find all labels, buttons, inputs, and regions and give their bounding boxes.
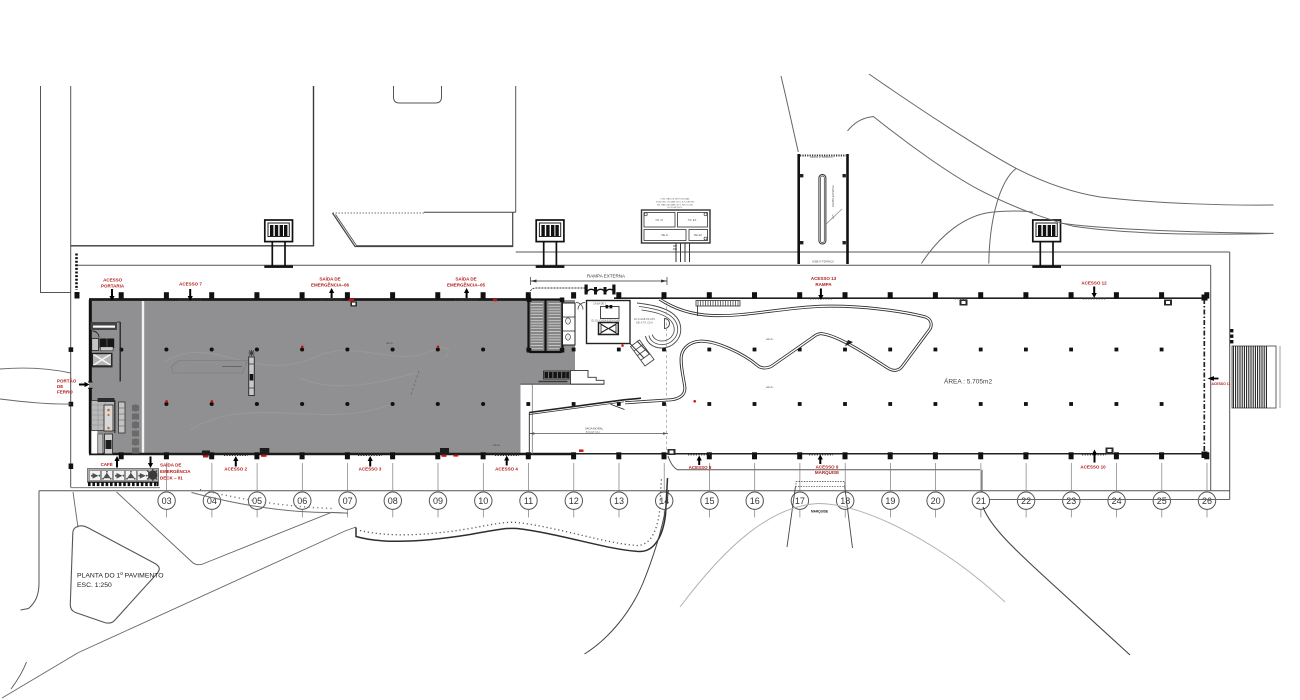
svg-text:12: 12 [569,496,579,506]
svg-text:GB. A.TS. CS.A: GB. A.TS. CS.A [636,322,653,325]
svg-text:SAÍDA DE: SAÍDA DE [160,461,181,468]
svg-text:CON. PAD.CE SE.P.USI.GAB.: CON. PAD.CE SE.P.USI.GAB. [660,198,690,201]
svg-text:PORTARIA: PORTARIA [101,283,125,288]
svg-text:RAMPA EXTERNA: RAMPA EXTERNA [587,274,625,279]
svg-text:PLANTA DO 1º PAVIMENTO: PLANTA DO 1º PAVIMENTO [77,573,164,580]
svg-text:03: 03 [162,496,172,506]
svg-text:ACESSO 11: ACESSO 11 [1212,382,1231,386]
svg-text:CAFÉ: CAFÉ [101,460,113,467]
svg-text:PORTÃO: PORTÃO [57,378,77,384]
svg-text:ACESSO 10: ACESSO 10 [1080,465,1106,470]
svg-text:FERRO: FERRO [57,390,73,395]
svg-text:ACESSO 13: ACESSO 13 [811,276,837,281]
svg-text:EMERGÊNCIA–05: EMERGÊNCIA–05 [447,280,486,287]
svg-text:T.R. M: T.R. M [655,218,663,222]
svg-text:SAÍDA DE: SAÍDA DE [455,275,476,282]
svg-text:07: 07 [343,496,353,506]
svg-text:17: 17 [795,496,805,506]
svg-text:T.R. EX: T.R. EX [688,218,697,222]
svg-text:ÁREA : 5.705m2: ÁREA : 5.705m2 [944,377,992,386]
svg-text:ACESSO 7: ACESSO 7 [179,282,202,287]
svg-text:⌀A.A.: ⌀A.A. [493,443,501,447]
svg-text:SOBE P/ TERRACO: SOBE P/ TERRACO [812,261,834,264]
svg-text:ACESSO 12: ACESSO 12 [1081,281,1107,286]
svg-text:DECK – 01: DECK – 01 [160,476,183,481]
svg-text:08: 08 [388,496,398,506]
svg-text:16: 16 [750,496,760,506]
svg-text:RAMPA: RAMPA [815,282,832,287]
svg-text:ACESSO: ACESSO [103,278,123,283]
svg-text:09: 09 [433,496,443,506]
svg-text:EMERGÊNCIA–06: EMERGÊNCIA–06 [311,280,350,287]
svg-text:ME.D.: ME.D. [661,233,668,237]
svg-text:25: 25 [1157,496,1167,506]
svg-text:E.CS.SE.CE S.: E.CS.SE.CE S. [668,207,683,209]
svg-text:B.St.GT CS.I: B.St.GT CS.I [586,431,600,434]
svg-text:ESC. 1:250: ESC. 1:250 [77,582,112,589]
svg-text:20: 20 [931,496,941,506]
svg-text:ACESSO 9: ACESSO 9 [816,465,839,470]
svg-text:ACESSO 4: ACESSO 4 [495,467,518,472]
svg-text:⌀A.A.: ⌀A.A. [386,341,394,345]
svg-text:EMERGÊNCIA: EMERGÊNCIA [160,467,191,474]
svg-text:CASA DE 1: CASA DE 1 [593,301,607,305]
svg-text:⌀A.A.: ⌀A.A. [766,385,774,389]
svg-text:24: 24 [1112,496,1122,506]
svg-text:13: 13 [614,496,624,506]
svg-text:10: 10 [478,496,488,506]
svg-text:⌀A.A.: ⌀A.A. [766,337,774,341]
svg-text:19: 19 [885,496,895,506]
svg-text:SE. PAD.USI.GAB.CE S. SE.CS.US: SE. PAD.USI.GAB.CE S. SE.CS.USI [657,203,693,206]
svg-text:11: 11 [524,496,533,506]
svg-text:DESCE P/ SUBSOLO: DESCE P/ SUBSOLO [810,156,834,159]
svg-text:23: 23 [1066,496,1076,506]
svg-text:22: 22 [1021,496,1031,506]
svg-text:MARQUISE: MARQUISE [811,510,828,514]
svg-text:21: 21 [976,496,986,506]
svg-text:SAÍDA DE: SAÍDA DE [319,275,340,282]
svg-text:ACESSO 2: ACESSO 2 [224,467,247,472]
svg-text:06: 06 [297,496,307,506]
svg-text:MARQUISE: MARQUISE [815,470,839,475]
svg-text:EL EL-CASA ELEV-GAB: EL EL-CASA ELEV-GAB [592,318,621,322]
svg-text:P.USI.USI. CS.GAB.CE.S. E.S.CR: P.USI.USI. CS.GAB.CE.S. E.S.CRV.SE [656,200,695,203]
svg-text:DE: DE [57,384,63,389]
svg-text:26: 26 [1202,496,1212,506]
svg-text:ACESSO 3: ACESSO 3 [359,467,382,472]
svg-text:18: 18 [840,496,850,506]
svg-text:15: 15 [704,496,714,506]
svg-text:RAMPA EXTERNA: RAMPA EXTERNA [831,185,835,207]
svg-text:ME.EX: ME.EX [694,233,702,237]
svg-text:ACESSO 8: ACESSO 8 [689,465,712,470]
